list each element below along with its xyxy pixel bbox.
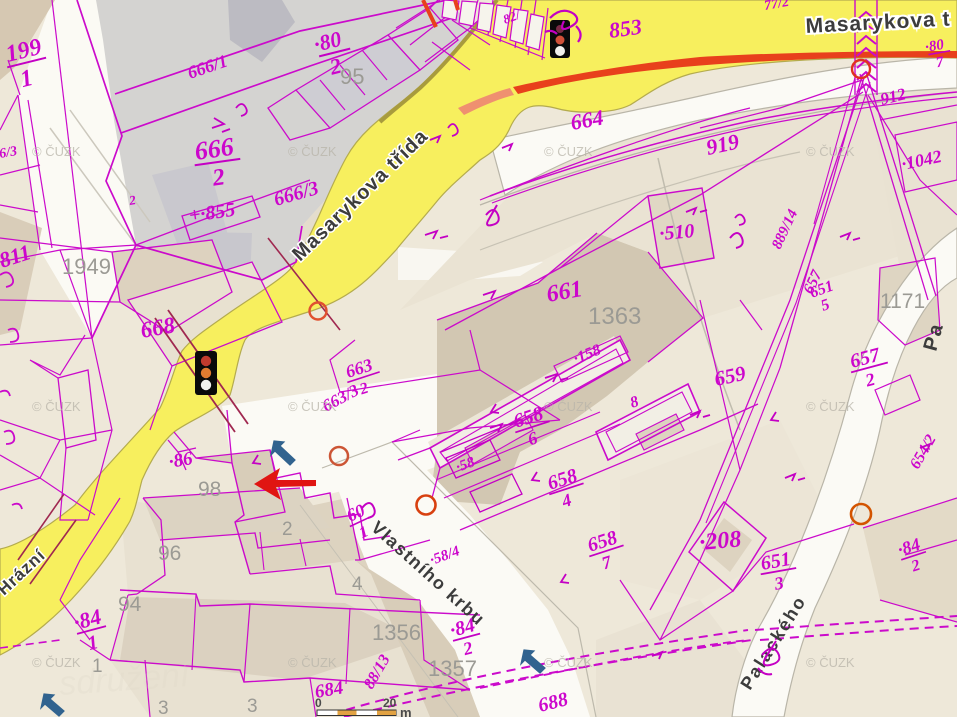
svg-text:1949: 1949 [62, 254, 111, 279]
svg-text:© ČUZK: © ČUZK [806, 144, 855, 159]
svg-text:© ČUZK: © ČUZK [806, 655, 855, 670]
svg-text:·86: ·86 [167, 448, 195, 473]
svg-text:© ČUZK: © ČUZK [288, 655, 337, 670]
svg-text:© ČUZK: © ČUZK [288, 399, 337, 414]
svg-text:1363: 1363 [588, 303, 641, 330]
svg-text:95: 95 [340, 64, 364, 89]
svg-text:© ČUZK: © ČUZK [544, 144, 593, 159]
svg-text:4: 4 [352, 574, 363, 595]
svg-text:94: 94 [118, 593, 142, 616]
svg-text:·510: ·510 [659, 220, 696, 245]
svg-text:6/3: 6/3 [0, 144, 18, 162]
svg-text:© ČUZK: © ČUZK [806, 399, 855, 414]
svg-text:·208: ·208 [698, 526, 742, 556]
svg-text:0: 0 [315, 696, 322, 710]
svg-text:853: 853 [607, 14, 643, 43]
svg-text:© ČUZK: © ČUZK [544, 655, 593, 670]
svg-text:20: 20 [383, 696, 397, 710]
svg-text:m: m [400, 705, 412, 717]
svg-text:3: 3 [158, 698, 169, 717]
svg-text:2: 2 [282, 519, 293, 540]
svg-text:© ČUZK: © ČUZK [288, 144, 337, 159]
svg-text:1357: 1357 [428, 656, 477, 681]
svg-text:1171: 1171 [880, 290, 925, 313]
svg-text:98: 98 [198, 478, 221, 501]
svg-text:3: 3 [247, 696, 258, 717]
svg-text:© ČUZK: © ČUZK [32, 399, 81, 414]
svg-text:© ČUZK: © ČUZK [32, 144, 81, 159]
svg-text:© ČUZK: © ČUZK [544, 399, 593, 414]
svg-text:96: 96 [158, 542, 181, 565]
svg-text:1356: 1356 [372, 620, 421, 645]
